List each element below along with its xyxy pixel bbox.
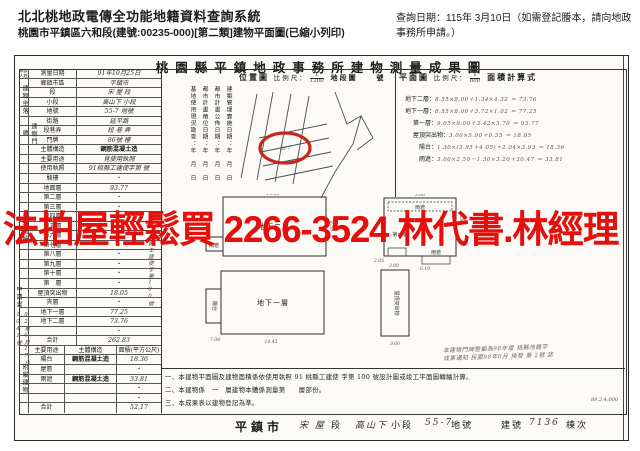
panel-divider — [395, 69, 396, 197]
area-calc-line: 第一層：9.05×9.00＋3.42×3.70 ＝ 93.77 — [413, 118, 625, 130]
area-calc-line: 屋頂突出物：3.00×5.90＋0.35 ＝ 18.05 — [413, 130, 625, 142]
table-row: 第九層・ — [19, 260, 161, 270]
bottom-strip-item: 55-7 — [425, 418, 453, 428]
query-date: 查詢日期：115年 3月10日（如需登記謄本，請向地政事務所申請。） — [396, 9, 640, 39]
table-row: 鄉鎮市區平鎮市 — [19, 79, 161, 89]
table-row: 段巷弄段 巷 弄 — [19, 126, 161, 136]
parcel-number-note: 55-7 — [280, 146, 290, 152]
table-row: 夾層・ — [19, 298, 161, 308]
area-calc-line: 地下一層：8.55×8.60＋3.72×1.02 ＝ 77.25 — [405, 106, 625, 118]
table-row: 第 層・ — [19, 279, 161, 289]
plan-dimension: 14.50 — [267, 194, 280, 197]
table-row: 使用執照91桃縣工建使字第 號 — [19, 164, 161, 174]
area-calc-line: 陽台：1.30×(3.95＋4.05)＋2.04×3.93 ＝ 18.36 — [419, 142, 625, 154]
base-date-line: 建築管理實施日期：年 月 日 — [224, 86, 233, 204]
table-row: 雨遮鋼筋混凝土造33.81 — [19, 375, 161, 385]
table-group-label: 建物坐落 — [20, 81, 29, 119]
table-row: 段宋 屋 段 — [19, 88, 161, 98]
table-row: 主要用途主體構造面積(平方公尺) — [19, 346, 161, 356]
plan-label: 屋頂突出物 — [393, 290, 400, 315]
table-row: 地下二層73.76 — [19, 317, 161, 327]
table-row: ・ — [19, 327, 161, 337]
bottom-strip-item: 建號 — [501, 418, 523, 431]
plan-dimension: 6.10 — [420, 266, 430, 272]
area-formula-label: 面積計算式 — [487, 72, 537, 82]
bottom-strip-item: 地號 — [451, 418, 473, 431]
base-date-line: 都市計畫樁位日期：年 月 日 — [200, 86, 209, 204]
table-row: 地號55-7 地號 — [19, 107, 161, 117]
document-subtitle: 桃園市平鎮區六和段(建號:00235-000)[第二類]建物平面圖(已縮小列印) — [18, 25, 345, 40]
margin-handwriting: 92年6月17日 1041號 — [14, 312, 30, 398]
plan-dimension: 3.60 — [415, 194, 425, 198]
plan-dimension: 2.05 — [373, 258, 384, 264]
margin-label: 申請書 — [14, 284, 23, 310]
table-row: 主體構造鋼筋混凝土造 — [19, 145, 161, 155]
table-row: 屋簷・ — [19, 365, 161, 375]
table-row: 主要用途見使用執照 — [19, 155, 161, 165]
bottom-strip-item: 小段 — [391, 418, 413, 431]
area-calc-line: 雨遮：3.00×2.50－1.30×3.20＋30.47 ＝ 33.81 — [419, 154, 625, 166]
location-map-label: 位置圖 — [239, 72, 269, 82]
base-date-panel: 建築管理實施日期：年 月 日都市計畫公佈日期：年 月 日都市計畫樁位日期：年 月… — [167, 86, 233, 204]
red-watermark-text: 法拍屋輕鬆買 2266-3524 林代書.林經理 — [3, 199, 618, 253]
bottom-strip-item: 棟次 — [566, 418, 588, 431]
bottom-strip-item: 高山下 — [355, 418, 388, 431]
plan-label: 陽台 — [211, 301, 218, 311]
table-row: 申請人姓名測量日期91年10月25日 — [19, 69, 161, 79]
table-row: 陽台鋼筋混凝土造18.36 — [19, 355, 161, 365]
location-map-header: 位置圖 比例尺：11200 地段圖 號 — [239, 72, 385, 84]
base-date-line: 基地使用現況勘查：年 月 日 — [188, 86, 197, 204]
plan-label: 地下一層 — [257, 298, 289, 307]
table-row: 合計52.17 — [19, 403, 161, 413]
location-map-sketch: 55-7 — [239, 86, 387, 204]
system-title: 北北桃地政電傳全功能地籍資料查詢系統 — [18, 6, 261, 25]
table-row: 小段高山下 小段 — [19, 98, 161, 108]
table-row: 地下一層77.25 — [19, 308, 161, 318]
bottom-strip-item: 平鎮市 — [235, 418, 283, 435]
note-3: 三、本成果表以建物登記為準。 — [165, 398, 259, 407]
table-row: 合計262.83 — [19, 336, 161, 346]
base-date-line: 都市計畫公佈日期：年 月 日 — [212, 86, 221, 204]
table-row: 屋頂突出物18.05 — [19, 289, 161, 299]
note-1: 一、本建物平面圖及建物面積係依使用執照 91 桃縣工建使 字第 100 號設計圖… — [165, 372, 473, 381]
table-row: 騎樓・ — [19, 174, 161, 184]
plan-dimension: 3.00 — [390, 341, 400, 347]
table-row: 街路延平路 — [19, 117, 161, 127]
table-row: 地面層93.77 — [19, 184, 161, 194]
table-row: 門牌86號 樓 — [19, 136, 161, 146]
floor-plan-label: 平面圖 — [399, 72, 429, 82]
notes-divider — [161, 368, 625, 369]
area-calc-line: 地下二層：8.55×8.00＋1.34×4.32 ＝ 73.76 — [405, 94, 625, 106]
form-number: 89.2.4,000 — [591, 397, 618, 403]
floor-plan-header: 平面圖 比例尺：1600 面積計算式 — [399, 72, 537, 84]
plan-dimension: 7.08 — [210, 337, 220, 343]
screenshot-root: 北北桃地政電傳全功能地籍資料查詢系統 桃園市平鎮區六和段(建號:00235-00… — [0, 0, 640, 451]
plan-dimension: 14.45 — [265, 339, 278, 345]
bottom-strip-item: 7136 — [529, 418, 560, 428]
bottom-strip-item: 宋 屋 — [299, 418, 326, 431]
plan-dimension: 3.00 — [389, 263, 399, 269]
bottom-strip-item: 段 — [331, 418, 342, 431]
table-row: 第十層・ — [19, 269, 161, 279]
table-group-label: 建物門牌 — [20, 120, 38, 148]
note-2: 二、本建物係 一 層建物本體係測量第 層部份。 — [165, 385, 326, 394]
area-calculation-list: 地下二層：8.55×8.00＋1.34×4.32 ＝ 73.76地下一層：8.5… — [405, 94, 625, 166]
table-row: ・ — [19, 384, 161, 394]
table-row: ・ — [19, 394, 161, 404]
